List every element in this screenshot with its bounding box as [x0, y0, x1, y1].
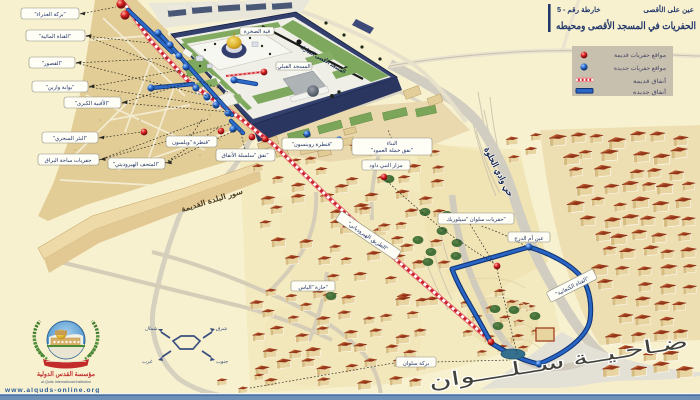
svg-text:"القناة المائية": "القناة المائية": [39, 33, 71, 40]
svg-text:شرق: شرق: [216, 326, 228, 332]
svg-text:حفريات ساحة البراق: حفريات ساحة البراق: [45, 157, 93, 164]
svg-text:قبة الصخرة: قبة الصخرة: [244, 28, 271, 35]
svg-text:البناء: البناء: [387, 140, 398, 147]
svg-text:المسجد القبلي: المسجد القبلي: [277, 63, 311, 70]
svg-text:حارة "الياس": حارة "الياس": [298, 284, 327, 291]
svg-text:مزار النبي داود: مزار النبي داود: [369, 162, 402, 169]
svg-text:مؤسسة القدس الدولية: مؤسسة القدس الدولية: [37, 370, 95, 378]
svg-text:عين على الأقصى: عين على الأقصى: [643, 3, 694, 14]
svg-text:جنوب: جنوب: [216, 359, 229, 365]
svg-text:"القصور": "القصور": [42, 60, 62, 67]
svg-text:"المتحف الهيروديتي": "المتحف الهيروديتي": [113, 161, 159, 168]
svg-text:"نفق خملة العمود": "نفق خملة العمود": [371, 147, 413, 154]
svg-text:مواقع حفريات قديمة: مواقع حفريات قديمة: [614, 52, 666, 59]
svg-text:"البئر السحري": "البئر السحري": [53, 135, 87, 142]
svg-text:www.alquds-online.org: www.alquds-online.org: [4, 387, 100, 394]
svg-text:"قنطرة روبنسون": "قنطرة روبنسون": [292, 141, 333, 148]
svg-text:شمال: شمال: [145, 326, 158, 332]
svg-text:"بوابة واربن": "بوابة واربن": [46, 84, 74, 91]
svg-text:al-Quds International Institut: al-Quds International Institution: [41, 380, 91, 384]
svg-text:"بركة العذراء": "بركة العذراء": [34, 11, 65, 18]
svg-text:حفريات سلوان "سيلوريك": حفريات سلوان "سيلوريك": [446, 216, 505, 223]
svg-text:قنطرة "ويلسون": قنطرة "ويلسون": [172, 139, 210, 146]
svg-text:خارطة رقم - 5: خارطة رقم - 5: [557, 5, 601, 14]
svg-text:مواقع حفريات جديدة: مواقع حفريات جديدة: [614, 65, 666, 72]
svg-text:الحفريات في المسجد الأقصى ومحي: الحفريات في المسجد الأقصى ومحيطه: [556, 20, 696, 32]
svg-text:غرب: غرب: [142, 359, 152, 365]
svg-text:بركة سلوان: بركة سلوان: [403, 360, 430, 367]
